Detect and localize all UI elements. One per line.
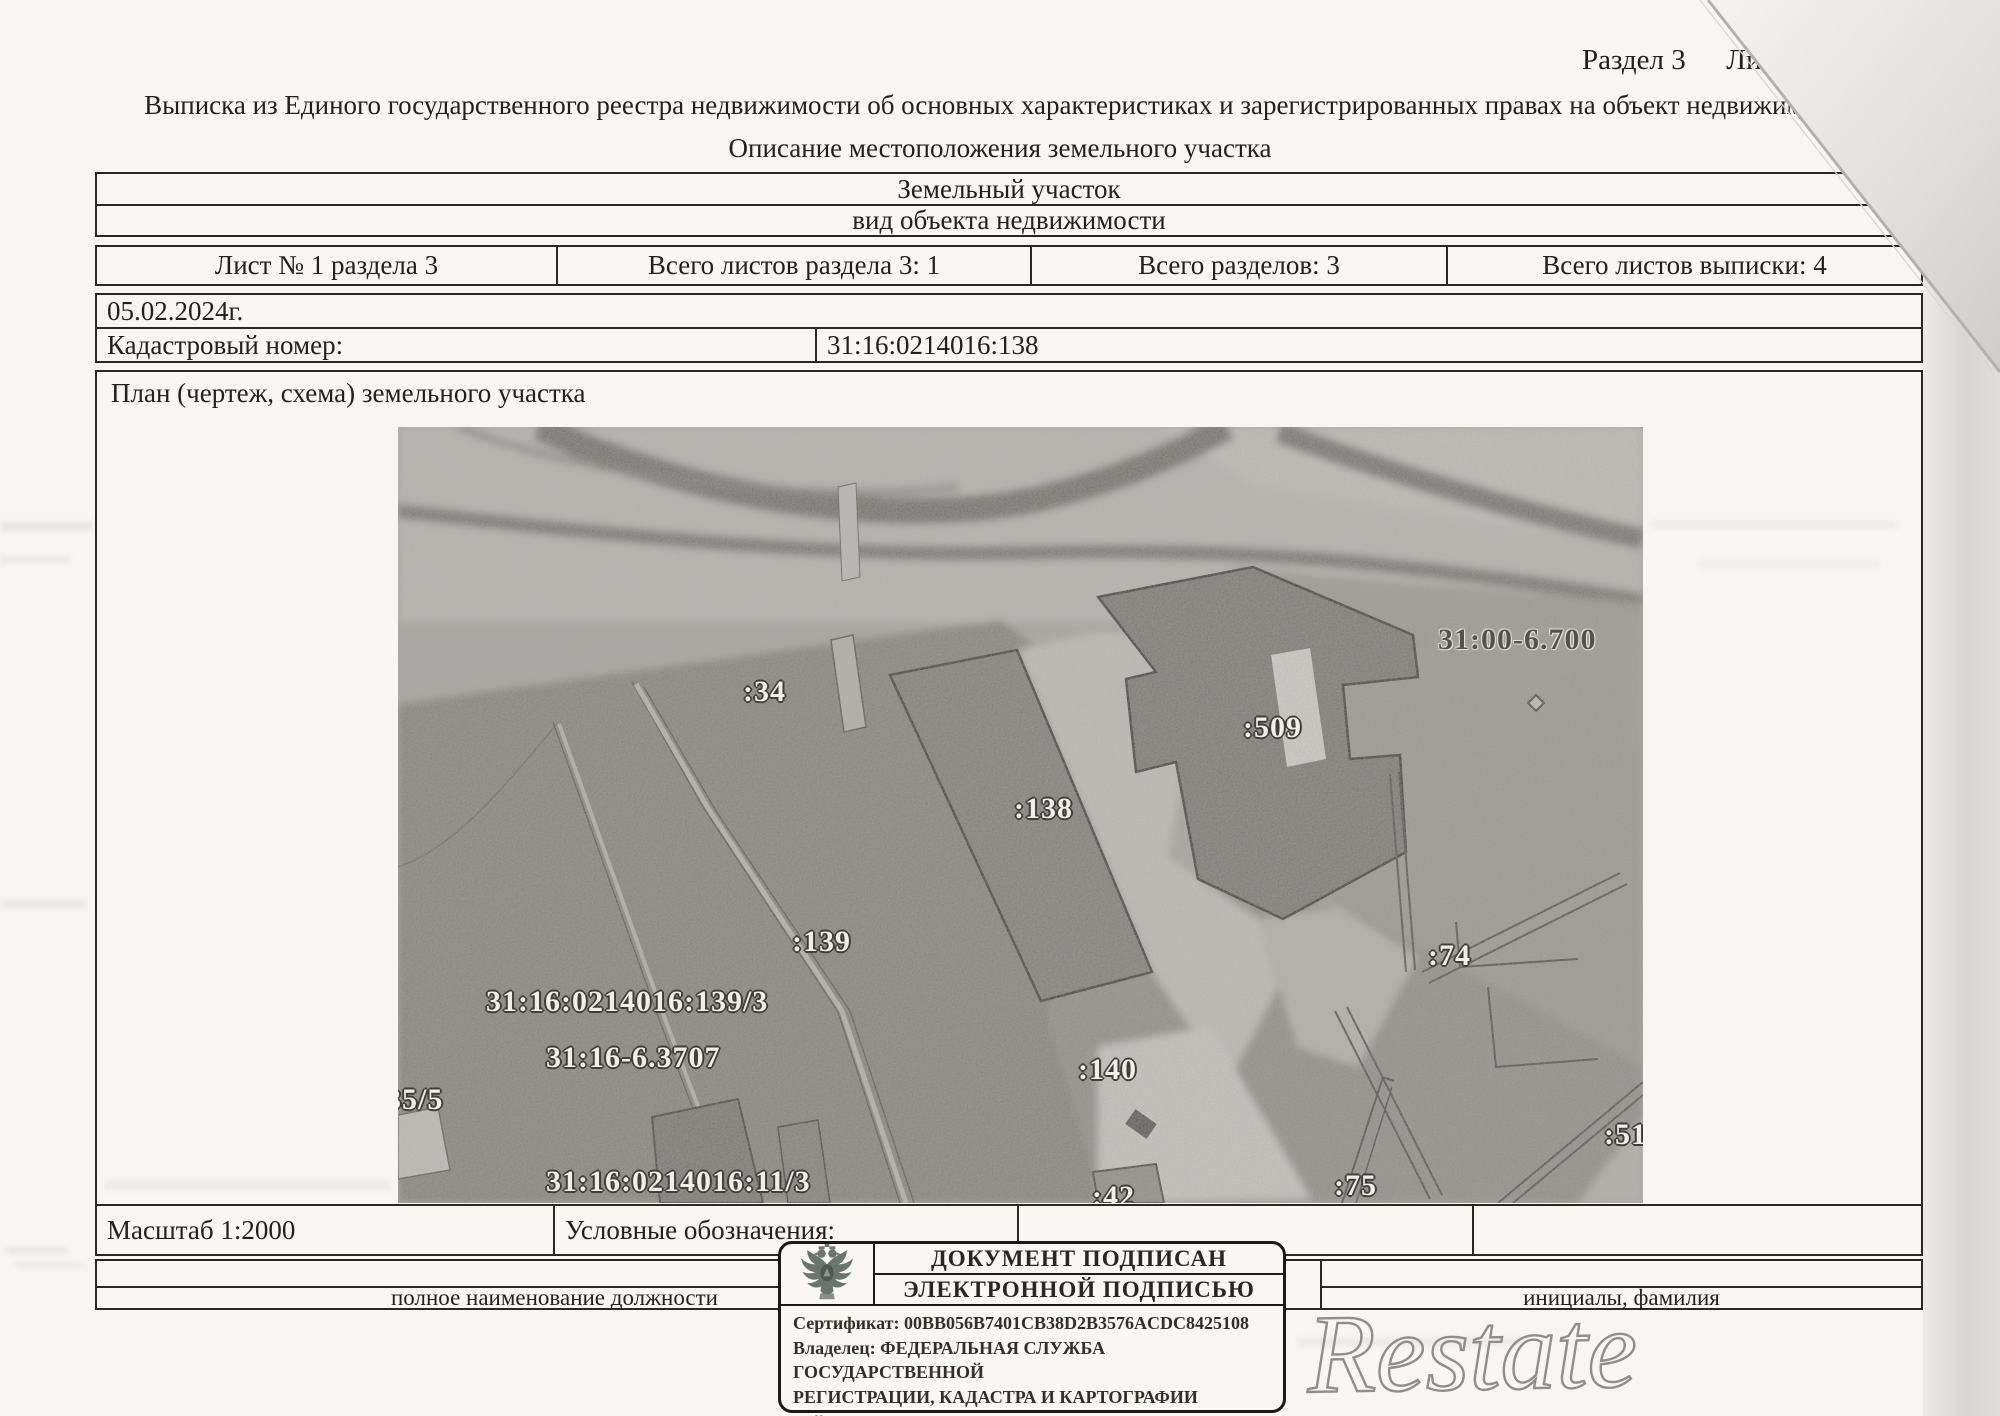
map-label-boundary-139-3: 31:16:0214016:139/3 xyxy=(486,985,768,1019)
sheet-number: Лист № 1 раздела 3 xyxy=(215,250,438,281)
digital-signature-stamp: ДОКУМЕНТ ПОДПИСАН ЭЛЕКТРОННОЙ ПОДПИСЬЮ С… xyxy=(778,1241,1286,1413)
map-label-parcel-51: :51 xyxy=(1604,1118,1643,1152)
map-label-parcel-74: :74 xyxy=(1428,939,1471,973)
scan-streak xyxy=(1652,520,1897,529)
restate-watermark: Restate xyxy=(1300,1296,1960,1416)
cadastral-number: 31:16:0214016:138 xyxy=(827,330,1039,361)
scale-cell: Масштаб 1:2000 xyxy=(95,1204,555,1256)
stamp-owner-line1: Владелец: ФЕДЕРАЛЬНАЯ СЛУЖБА ГОСУДАРСТВЕ… xyxy=(793,1336,1271,1385)
map-label-parcel-509: :509 xyxy=(1243,711,1302,745)
scan-streak xyxy=(2,900,86,908)
cadastral-label: Кадастровый номер: xyxy=(107,330,343,361)
map-label-boundary-11-3: 31:16:0214016:11/3 xyxy=(546,1165,811,1199)
object-type-caption-cell: вид объекта недвижимости xyxy=(95,204,1923,237)
document-title: Выписка из Единого государственного реес… xyxy=(50,90,1950,121)
map-label-zone-31-16: 31:16-6.3707 xyxy=(546,1041,720,1075)
position-caption: полное наименование должности xyxy=(391,1285,718,1311)
map-label-parcel-75: :75 xyxy=(1334,1169,1377,1203)
sections-total: Всего разделов: 3 xyxy=(1138,250,1340,281)
map-label-parcel-138: :138 xyxy=(1014,792,1073,826)
object-type-caption: вид объекта недвижимости xyxy=(852,205,1165,236)
map-label-parcel-34: :34 xyxy=(743,675,786,709)
sheet-number-cell: Лист № 1 раздела 3 xyxy=(95,245,558,286)
map-label-parcel-35-5: 35/5 xyxy=(398,1083,443,1117)
sheets-in-section-cell: Всего листов раздела 3: 1 xyxy=(556,245,1032,286)
map-label-parcel-42: :42 xyxy=(1092,1180,1135,1203)
sheets-in-section: Всего листов раздела 3: 1 xyxy=(648,250,940,281)
stamp-validity: Действителен: с 27.06.2023 по 19.09.2024 xyxy=(793,1410,1271,1416)
coat-of-arms-icon xyxy=(781,1244,875,1304)
stamp-title-line2: ЭЛЕКТРОННОЙ ПОДПИСЬЮ xyxy=(875,1275,1283,1304)
map-label-parcel-139: :139 xyxy=(792,925,851,959)
stamp-title-line1: ДОКУМЕНТ ПОДПИСАН xyxy=(875,1244,1283,1275)
scan-streak xyxy=(105,1180,390,1190)
map-label-zone-31-00: 31:00-6.700 xyxy=(1438,623,1596,657)
scan-streak xyxy=(14,1262,84,1268)
object-type-value: Земельный участок xyxy=(897,174,1120,205)
scale-label: Масштаб 1:2000 xyxy=(107,1215,295,1246)
name-field xyxy=(1320,1259,1923,1288)
scan-streak xyxy=(1700,560,1880,568)
scan-streak xyxy=(0,522,92,531)
document-subtitle: Описание местоположения земельного участ… xyxy=(50,133,1950,164)
folded-corner xyxy=(1696,0,2000,380)
legend-empty-cell-2 xyxy=(1472,1204,1923,1256)
cadastral-label-cell: Кадастровый номер: xyxy=(95,327,817,363)
cadastral-map-image: :34 :509 31:00-6.700 :138 :139 31:16:021… xyxy=(398,427,1643,1203)
object-type-cell: Земельный участок xyxy=(95,172,1923,206)
map-label-parcel-140: :140 xyxy=(1078,1053,1137,1087)
scanned-document-page: Раздел 3 Ли Выписка из Единого государст… xyxy=(0,0,2000,1416)
section-header-text: Раздел 3 xyxy=(1582,44,1686,76)
scan-streak xyxy=(0,556,70,563)
date-cell: 05.02.2024г. xyxy=(95,293,1923,329)
extract-date: 05.02.2024г. xyxy=(107,296,243,327)
scan-streak xyxy=(6,1247,68,1254)
stamp-certificate: Сертификат: 00BB056B7401CB38D2B3576ACDC8… xyxy=(793,1311,1271,1336)
stamp-owner-line2: РЕГИСТРАЦИИ, КАДАСТРА И КАРТОГРАФИИ xyxy=(793,1385,1271,1410)
watermark-text: Restate xyxy=(1305,1296,1638,1416)
plan-caption: План (чертеж, схема) земельного участка xyxy=(97,372,586,409)
sections-total-cell: Всего разделов: 3 xyxy=(1030,245,1448,286)
